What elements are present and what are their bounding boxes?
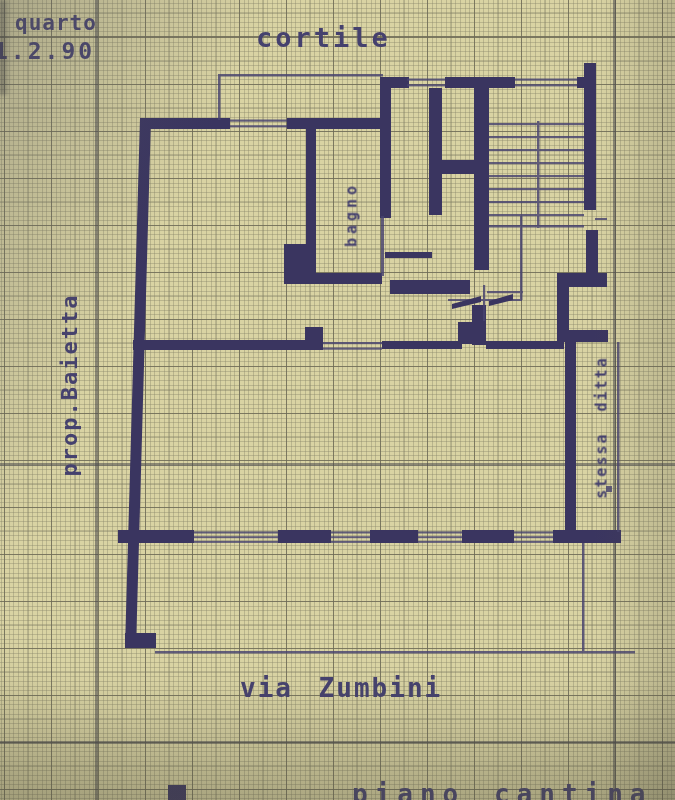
stamp-mark xyxy=(168,785,186,800)
window-south-1 xyxy=(194,532,278,534)
paper-edge-shadow xyxy=(0,0,10,95)
door-opening-interior xyxy=(323,348,382,350)
hall-line-horizontal xyxy=(487,291,523,293)
wall-bagno-pier xyxy=(284,244,306,278)
terrace-line-top xyxy=(218,74,383,77)
landing-door-jamb xyxy=(595,218,607,220)
wall-top-a1 xyxy=(140,118,230,129)
wall-bagno-right-thin xyxy=(381,216,384,276)
label-right-boundary: stessa ditta xyxy=(595,353,610,503)
window-south-4 xyxy=(514,541,553,543)
window-top-a xyxy=(230,120,287,122)
wall-southeast-step xyxy=(557,273,607,287)
wall-south-1 xyxy=(118,530,194,543)
window-south-2 xyxy=(331,532,370,534)
graph-paper-sheet: quarto 1.2.90 cortile prop.Baietta bagno… xyxy=(0,0,675,800)
wall-stair-left xyxy=(474,88,489,270)
stair-stringer xyxy=(537,121,540,228)
wall-entry-chunk xyxy=(458,322,486,344)
wall-stub-corridor xyxy=(442,160,477,174)
wall-corridor-right xyxy=(429,88,442,215)
window-south-1 xyxy=(194,541,278,543)
wall-top-b1 xyxy=(383,77,409,88)
wall-south-5 xyxy=(553,530,621,543)
window-south-1 xyxy=(194,536,278,538)
stamp-square xyxy=(168,785,186,800)
label-left-boundary: prop.Baietta xyxy=(59,279,81,491)
wall-corridor-shelf xyxy=(385,252,432,258)
property-line-vertical xyxy=(582,543,585,653)
door-frame-line xyxy=(483,285,485,321)
wall-south-3 xyxy=(370,530,418,543)
window-top-b1 xyxy=(407,79,445,81)
window-south-3 xyxy=(418,532,462,534)
hall-line-vertical xyxy=(520,215,523,300)
window-south-4 xyxy=(514,532,553,534)
wall-top-a2 xyxy=(287,118,391,129)
window-south-3 xyxy=(418,541,462,543)
wall-left-exterior xyxy=(125,118,151,648)
window-south-4 xyxy=(514,536,553,538)
wall-top-b2 xyxy=(445,77,515,88)
stair-tread xyxy=(489,162,584,164)
stair-tread xyxy=(489,123,584,125)
stair-tread xyxy=(489,136,584,138)
window-south-2 xyxy=(331,541,370,543)
wall-south-4 xyxy=(462,530,514,543)
wall-interior-horizontal xyxy=(133,340,323,350)
property-line-horizontal xyxy=(155,651,635,654)
note-floor: quarto xyxy=(15,13,97,34)
wall-room-right xyxy=(565,342,576,543)
window-top-b2 xyxy=(515,79,577,81)
wall-bagno-right xyxy=(380,118,391,218)
label-street: via Zumbini xyxy=(240,675,442,701)
note-date: 1.2.90 xyxy=(0,40,95,63)
window-top-b2 xyxy=(515,84,577,86)
stair-tread xyxy=(489,214,584,216)
window-south-2 xyxy=(331,536,370,538)
label-bathroom: bagno xyxy=(345,167,360,263)
wall-south-2 xyxy=(278,530,331,543)
balcony-east-line xyxy=(617,342,620,532)
terrace-line-left xyxy=(218,74,221,120)
window-top-b1 xyxy=(407,84,445,86)
wall-east-arm xyxy=(565,330,608,342)
door-opening-interior xyxy=(323,342,382,344)
wall-left-foot xyxy=(125,633,156,648)
thin-lines xyxy=(155,74,635,654)
label-courtyard: cortile xyxy=(256,24,391,51)
stair-bottom-line xyxy=(489,225,584,228)
stair-tread xyxy=(489,149,584,151)
wall-interior-horizontal-c xyxy=(486,341,564,349)
window-top-a xyxy=(230,125,287,127)
door-leaf-right xyxy=(489,294,513,306)
wall-east-upper xyxy=(584,63,596,210)
wall-hall-band xyxy=(390,280,470,294)
wall-interior-horizontal-b xyxy=(382,341,462,349)
wall-interior-stub-up xyxy=(305,327,323,341)
window-south-3 xyxy=(418,536,462,538)
wall-bagno-left xyxy=(306,129,316,284)
stair-tread xyxy=(489,188,584,190)
stair-tread xyxy=(489,201,584,203)
wall-east-lower xyxy=(586,230,598,276)
label-bottom-partial: piano cantina xyxy=(352,781,653,800)
stair-tread xyxy=(489,175,584,177)
